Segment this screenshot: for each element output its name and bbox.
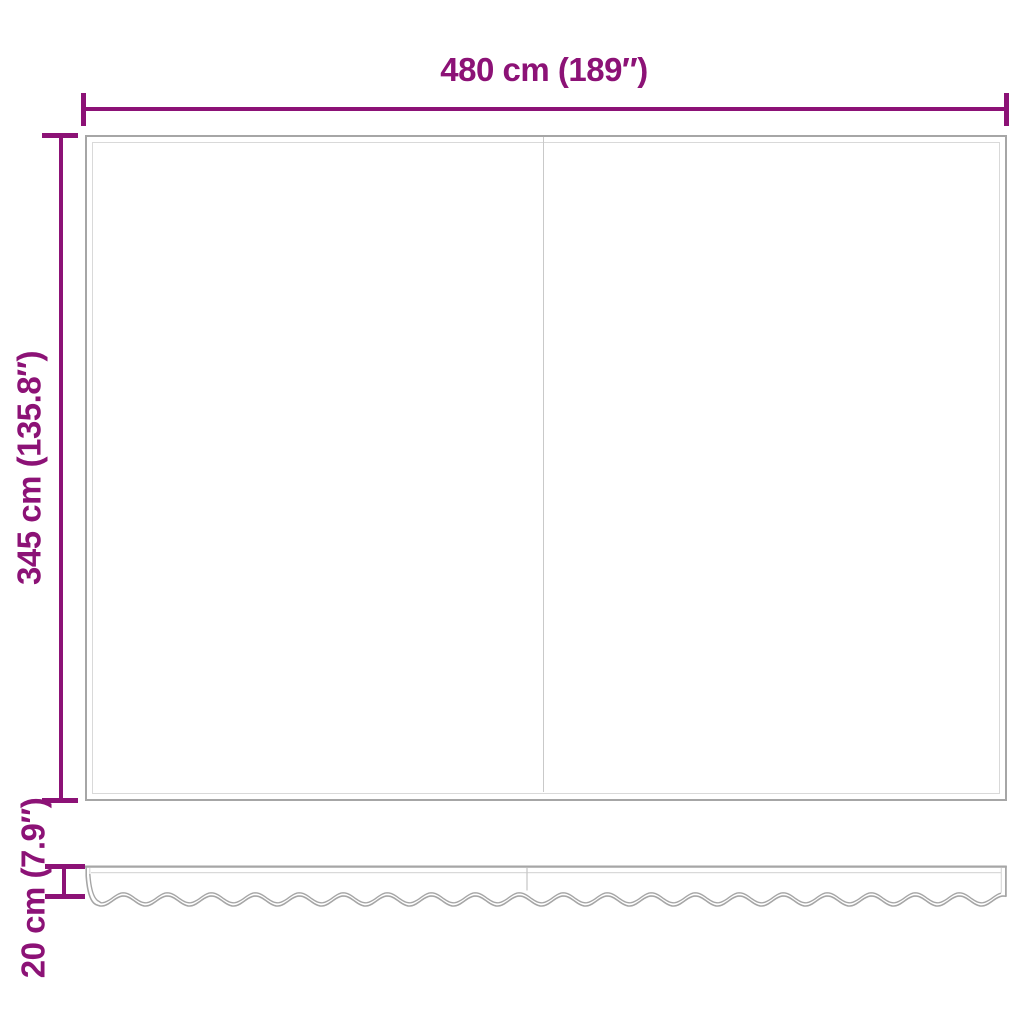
product-dimension-diagram: 480 cm (189″) 345 cm (135.8″) 20 cm (7.9… — [0, 0, 1024, 1024]
valance-strip — [0, 0, 1024, 1024]
